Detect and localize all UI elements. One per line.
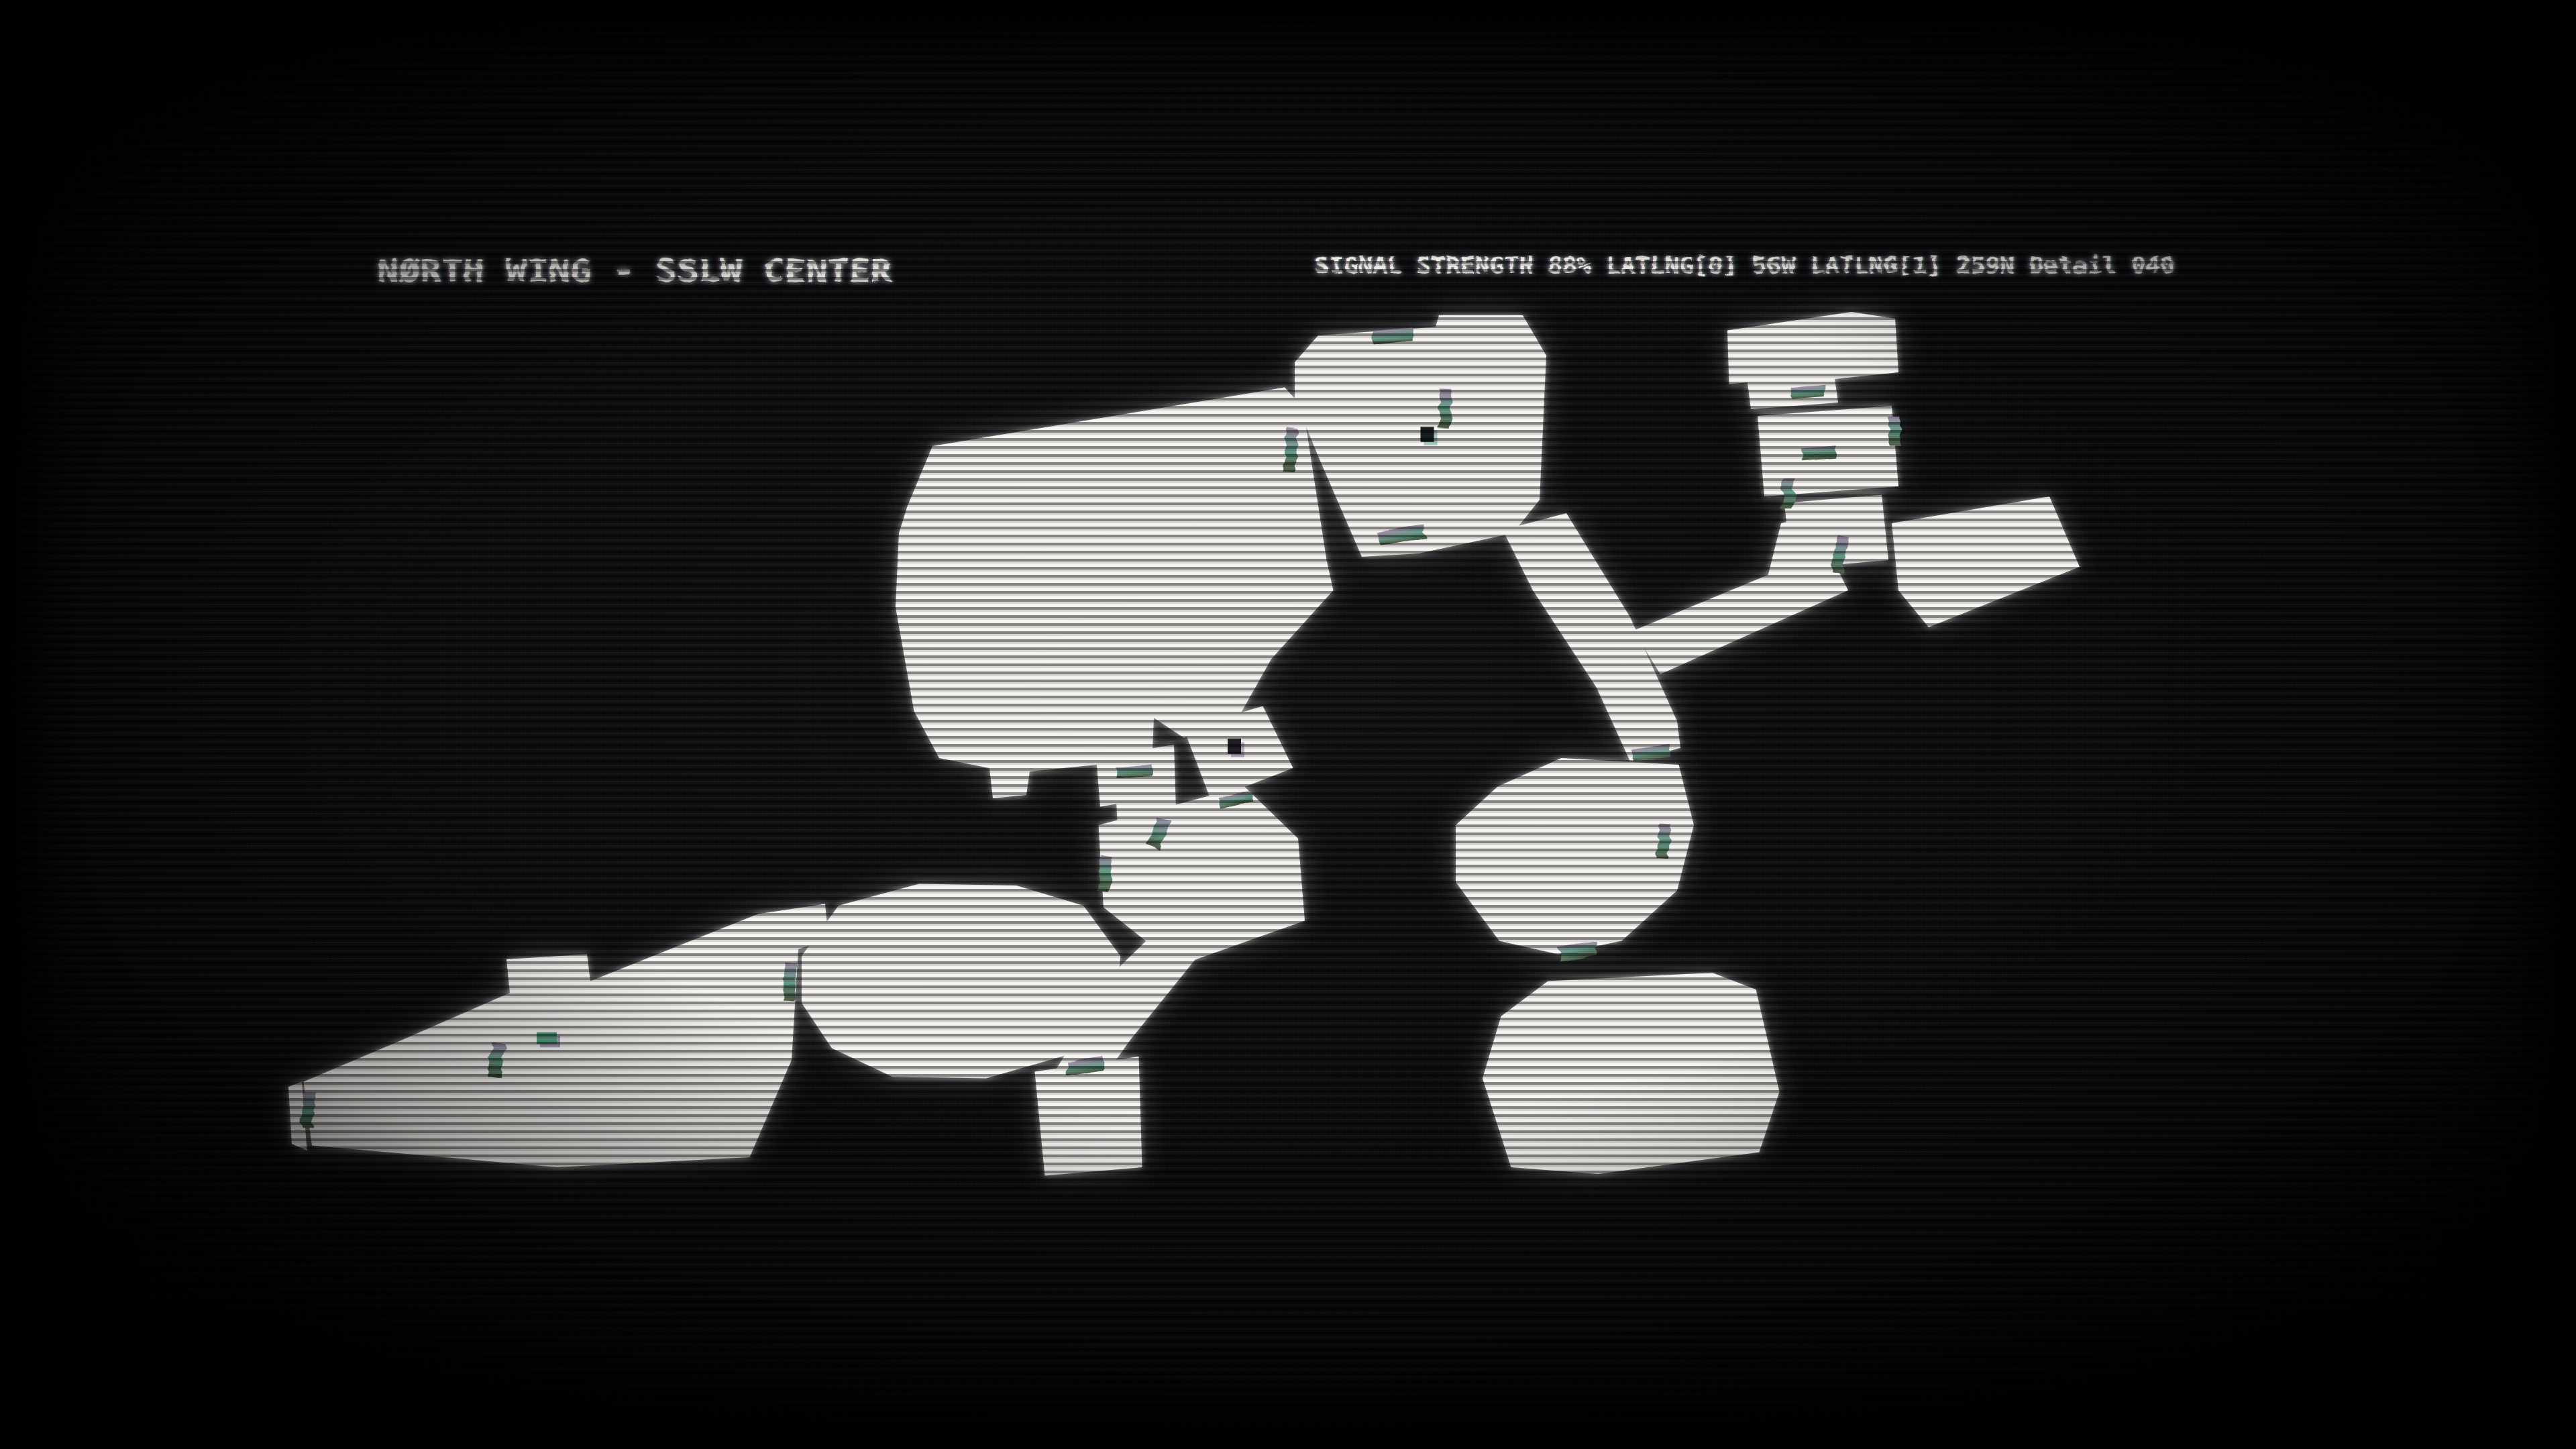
- map-room-east-room: [1892, 496, 2080, 627]
- map-room-service-corridor-a: [1114, 745, 1177, 872]
- hud-layer: NØRTH WING - SSLW CENTER SIGNAL STRENGTH…: [376, 251, 2173, 288]
- map-door-ne-upper-mid: [1790, 384, 1825, 398]
- display-content: NØRTH WING - SSLW CENTER SIGNAL STRENGTH…: [0, 0, 2576, 1449]
- map-door-north-east-edge: [1439, 389, 1452, 427]
- map-room-west-wing-hall: [304, 904, 829, 1168]
- status-readout: SIGNAL STRENGTH 88% LATLNG[0] 56W LATLNG…: [1313, 251, 2174, 277]
- map-door-ne-mid-right: [1889, 416, 1901, 446]
- facility-map: NØRTH WING - SSLW CENTER SIGNAL STRENGTH…: [0, 0, 2576, 1449]
- map-door-ne-mid-lower: [1803, 445, 1837, 460]
- map-room-round-room: [802, 884, 1120, 1079]
- map-door-ne-lower-left: [1782, 478, 1794, 508]
- map-room-south-stub: [1035, 1057, 1142, 1176]
- map-glitch-dot-wedge-speck: [537, 1032, 557, 1044]
- map-door-wedge-round: [783, 961, 797, 1002]
- map-glitch-dot-north-hall-dot: [1421, 427, 1434, 442]
- crt-screen: NØRTH WING - SSLW CENTER SIGNAL STRENGTH…: [0, 0, 2576, 1449]
- map-glitch-dot-small-room-dot: [1228, 739, 1241, 754]
- map-door-chamber-east: [1657, 824, 1671, 859]
- crt-console: { "header": { "title": "NØRTH WING - SSL…: [0, 0, 2576, 1449]
- map-room-south-chamber: [1483, 973, 1780, 1174]
- page-title: NØRTH WING - SSLW CENTER: [376, 252, 892, 288]
